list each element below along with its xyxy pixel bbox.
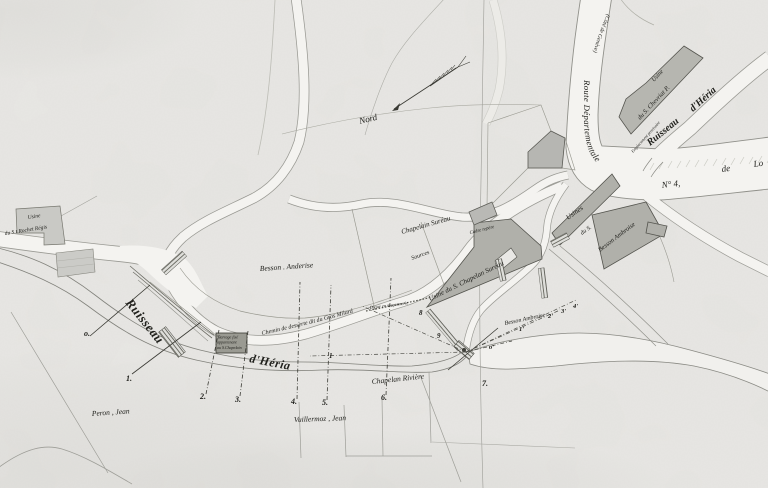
svg-text:o.: o. — [84, 329, 90, 338]
svg-text:Lo: Lo — [752, 158, 764, 169]
svg-text:2': 2' — [547, 313, 553, 320]
svg-text:1': 1' — [519, 326, 524, 333]
svg-text:3.: 3. — [234, 395, 241, 404]
svg-text:4': 4' — [572, 303, 578, 310]
svg-text:6.: 6. — [381, 393, 387, 402]
svg-text:9: 9 — [437, 332, 441, 340]
svg-text:1: 1 — [329, 352, 333, 360]
svg-text:2.: 2. — [199, 392, 206, 401]
svg-text:Vuillermoz , Jean: Vuillermoz , Jean — [294, 413, 347, 424]
svg-text:5.: 5. — [322, 398, 328, 407]
svg-text:8: 8 — [419, 309, 423, 317]
svg-text:appartenant: appartenant — [217, 340, 237, 345]
svg-text:1.: 1. — [126, 374, 132, 383]
svg-text:o': o' — [489, 344, 494, 351]
svg-text:4.: 4. — [290, 397, 297, 406]
svg-text:au S.Chapelain: au S.Chapelain — [217, 345, 242, 350]
svg-text:7.: 7. — [482, 379, 488, 388]
svg-text:N° 4,: N° 4, — [660, 178, 681, 190]
svg-text:3': 3' — [560, 308, 566, 315]
svg-text:de: de — [721, 163, 731, 174]
